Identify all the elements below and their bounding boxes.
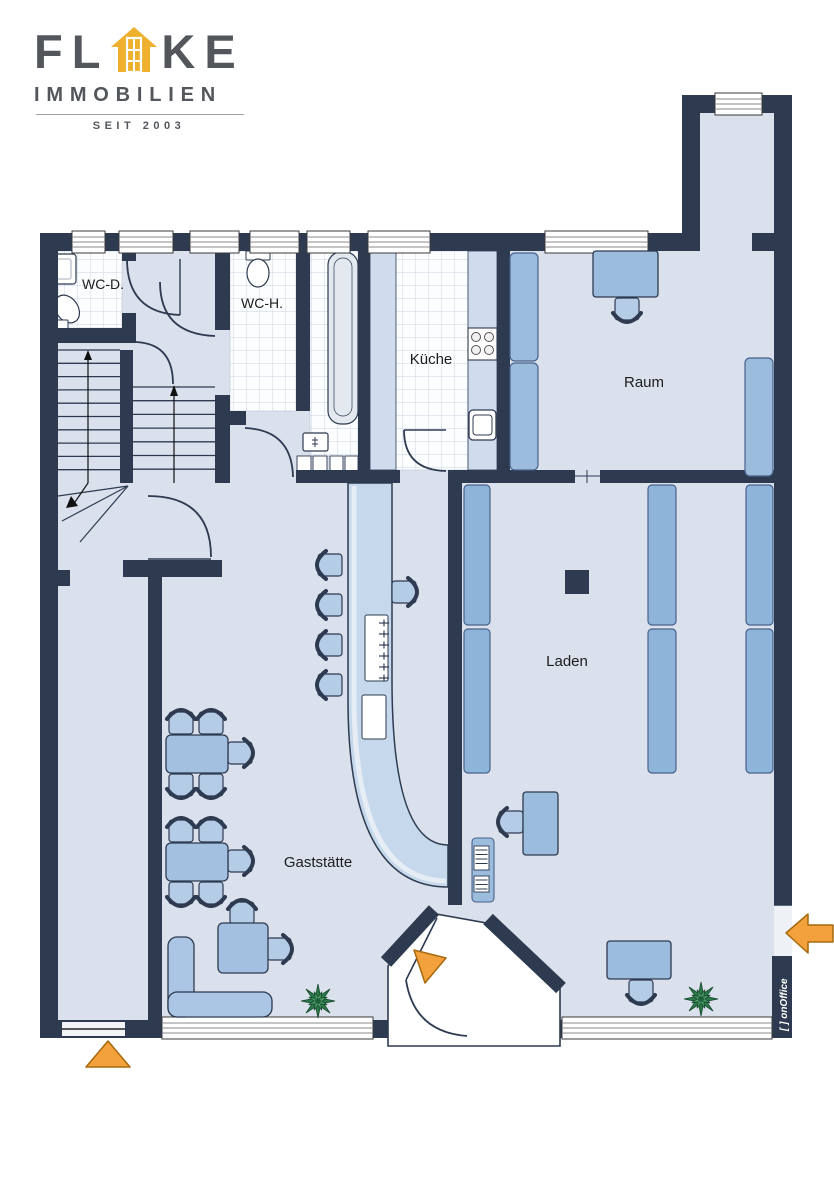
chair <box>167 818 195 842</box>
chair <box>167 882 195 906</box>
wall <box>752 233 774 251</box>
wall <box>497 251 510 483</box>
logo-brand-row: FL KE <box>34 24 274 75</box>
wall <box>58 328 136 343</box>
wall <box>296 470 400 483</box>
dining-table <box>166 735 228 773</box>
chair <box>317 631 342 659</box>
chair <box>267 935 292 963</box>
wall <box>123 560 222 577</box>
chair <box>317 671 342 699</box>
desk <box>593 251 658 297</box>
wall <box>448 470 575 483</box>
desk <box>523 792 558 855</box>
chair <box>228 900 256 924</box>
house-icon <box>109 24 159 76</box>
logo-since: SEIT 2003 <box>34 120 244 132</box>
cabinet <box>510 253 538 361</box>
wall <box>296 251 310 411</box>
floor-grate <box>313 456 327 471</box>
cabinet <box>745 358 773 476</box>
chair <box>167 774 195 798</box>
floor-grate <box>330 456 343 471</box>
wall <box>215 395 230 483</box>
chair <box>197 818 225 842</box>
shop-shelf <box>648 629 676 773</box>
room-label-gaststaette: Gaststätte <box>284 854 352 871</box>
wall <box>215 251 230 330</box>
wall <box>148 577 162 1020</box>
room-label-wc-d: WC-D. <box>82 276 124 292</box>
chair <box>392 578 417 606</box>
corner-bench <box>168 992 272 1017</box>
pillar <box>565 570 589 594</box>
wall <box>774 95 792 905</box>
wall <box>120 350 133 483</box>
stove-burner <box>485 333 494 342</box>
dining-table <box>218 923 268 973</box>
dining-table <box>166 843 228 881</box>
logo-text-ke: KE <box>161 28 244 75</box>
washroom-fixture <box>328 252 358 424</box>
company-logo: FL KE IMMOBILIEN SEIT 2003 <box>34 24 274 132</box>
stove-burner <box>472 346 481 355</box>
wall <box>358 251 370 470</box>
stove-burner <box>472 333 481 342</box>
shop-shelf <box>746 485 773 625</box>
room-label-kueche: Küche <box>410 351 453 368</box>
room-label-raum: Raum <box>624 374 664 391</box>
wall <box>230 411 246 425</box>
chair <box>228 739 253 767</box>
cabinet <box>510 363 538 470</box>
floor-plan: WC-D. WC-H. Küche Raum Laden Gaststätte … <box>0 0 834 1180</box>
chair <box>627 980 655 1004</box>
plant-center <box>315 998 321 1004</box>
wall <box>58 570 70 586</box>
onoffice-watermark: [ ] onOffice <box>779 978 790 1032</box>
room-label-laden: Laden <box>546 653 588 670</box>
bar-station <box>362 695 386 739</box>
chair <box>498 808 523 836</box>
logo-text-fl: FL <box>34 28 109 75</box>
wc-h-toilet <box>247 259 269 287</box>
wall <box>448 483 462 905</box>
shop-shelf <box>464 629 490 773</box>
stove <box>468 328 497 360</box>
wall <box>682 95 700 251</box>
chair <box>167 710 195 734</box>
chair <box>197 710 225 734</box>
logo-subtitle: IMMOBILIEN <box>34 84 274 107</box>
shop-shelf <box>464 485 490 625</box>
chair <box>228 847 253 875</box>
floor-grate <box>345 456 358 471</box>
chair <box>613 298 641 322</box>
wall <box>40 233 58 1038</box>
desk <box>607 941 671 979</box>
chair <box>197 882 225 906</box>
floor-grate <box>297 456 311 471</box>
chair <box>317 551 342 579</box>
logo-divider <box>36 114 244 115</box>
chair <box>317 591 342 619</box>
entrance-arrow-south <box>86 1041 130 1067</box>
stove-burner <box>485 346 494 355</box>
floorplan-page: WC-D. WC-H. Küche Raum Laden Gaststätte … <box>0 0 834 1180</box>
kitchen-counter-left <box>370 251 396 470</box>
shop-shelf <box>648 485 676 625</box>
room-label-wc-h: WC-H. <box>241 295 283 311</box>
plant-center <box>698 996 704 1002</box>
chair <box>197 774 225 798</box>
entrance-arrow-east <box>786 914 833 953</box>
shop-shelf <box>746 629 773 773</box>
